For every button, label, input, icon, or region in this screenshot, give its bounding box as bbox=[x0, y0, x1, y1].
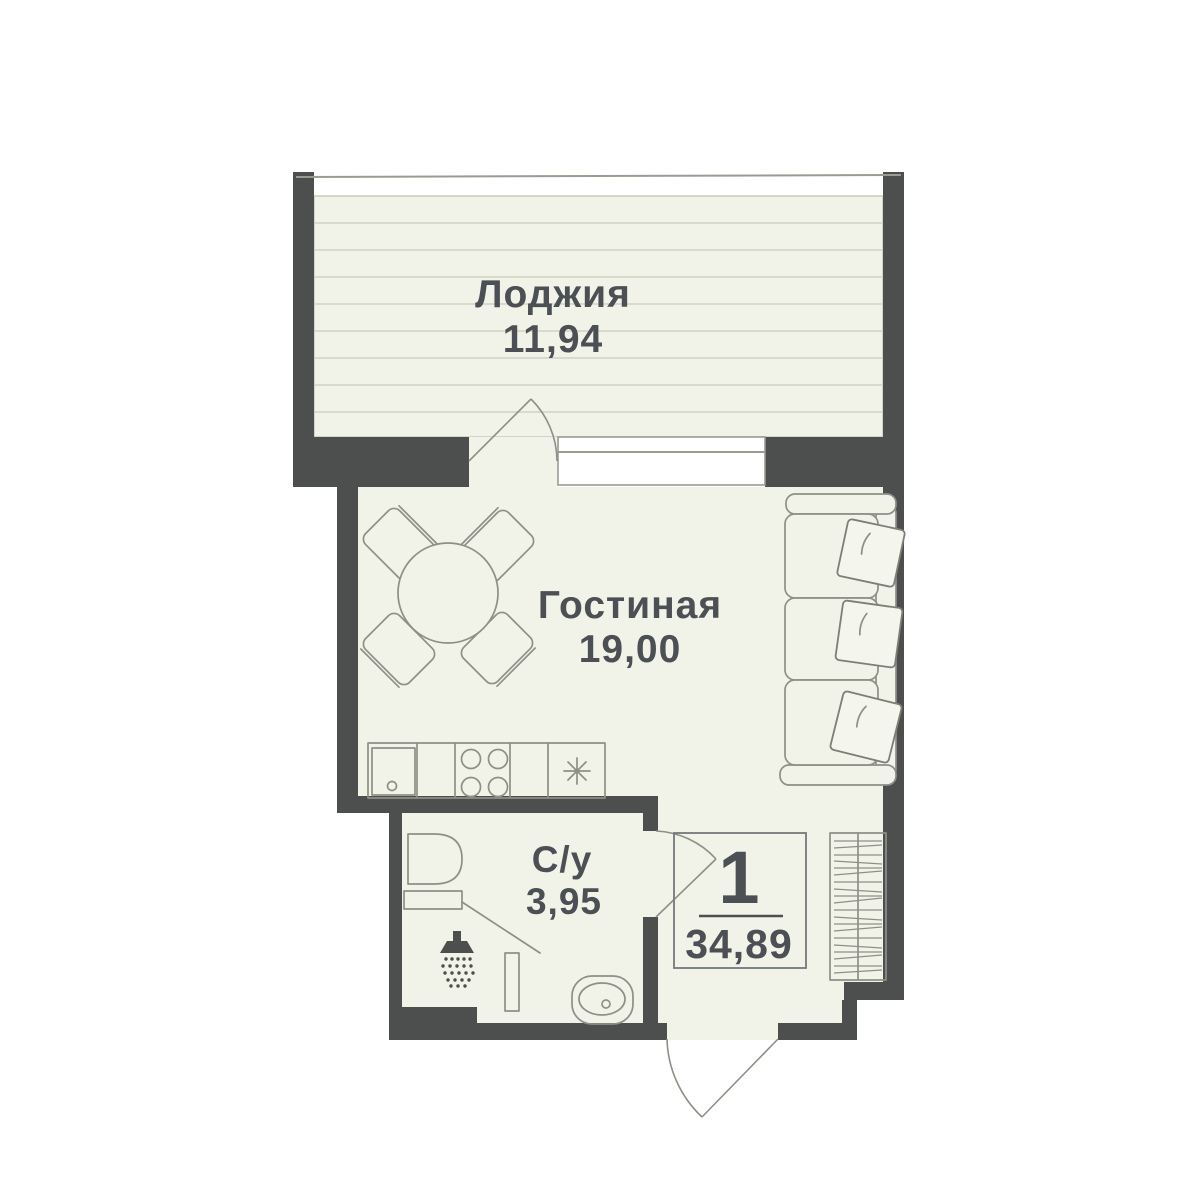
bathroom-area-label: 3,95 bbox=[526, 881, 602, 922]
wall-bathroom-door-jamb-top bbox=[643, 796, 658, 831]
bathroom-floor bbox=[402, 813, 643, 1023]
dishwasher-asterisk-icon bbox=[564, 758, 590, 784]
wall-bathroom-left bbox=[389, 813, 402, 1040]
entrance-door-leaf bbox=[702, 1039, 778, 1117]
wall-loggia-bottom-left bbox=[293, 437, 469, 487]
bathroom-name-label: С/у bbox=[532, 839, 593, 880]
loggia-area-label: 11,94 bbox=[503, 318, 603, 361]
floor-plan-canvas: 1 34,89 Лоджия 11,94 Гостиная 19,00 С/у … bbox=[0, 0, 1181, 1181]
sofa-pillow-2 bbox=[835, 600, 903, 668]
loggia-glazing-line bbox=[296, 175, 901, 177]
sofa bbox=[780, 494, 905, 785]
loggia-name-label: Лоджия bbox=[475, 273, 631, 316]
total-area-label: 34,89 bbox=[685, 921, 793, 967]
wall-bathroom-bottom bbox=[389, 1023, 667, 1040]
balcony-door-opening-floor bbox=[469, 437, 558, 489]
living-room-window bbox=[558, 437, 765, 485]
living-room-name-label: Гостиная bbox=[538, 584, 722, 627]
loggia-floor bbox=[314, 196, 883, 437]
wall-bathroom-bottom-step bbox=[389, 1007, 477, 1025]
sofa-pillow-1 bbox=[837, 519, 906, 588]
sofa-armrest-bottom bbox=[780, 765, 896, 785]
rooms-count-label: 1 bbox=[718, 836, 759, 919]
entrance-door-swing-arc bbox=[667, 1039, 702, 1117]
dining-table bbox=[398, 543, 498, 643]
wall-living-left bbox=[337, 437, 358, 813]
wall-entry-step-vertical bbox=[842, 1000, 857, 1040]
bathroom-door-opening-floor bbox=[643, 831, 658, 917]
wall-loggia-right bbox=[883, 172, 904, 437]
sofa-pillow-3 bbox=[830, 691, 903, 764]
floor-plan-svg: 1 34,89 Лоджия 11,94 Гостиная 19,00 С/у … bbox=[0, 0, 1181, 1181]
wall-entry-step-horizontal bbox=[844, 982, 904, 1000]
living-room-area-label: 19,00 bbox=[579, 628, 682, 671]
entrance-door bbox=[667, 1039, 778, 1117]
wall-bathroom-hall bbox=[643, 917, 658, 1040]
wall-entry-bottom-right bbox=[778, 1023, 842, 1040]
sofa-armrest-top bbox=[786, 494, 896, 514]
